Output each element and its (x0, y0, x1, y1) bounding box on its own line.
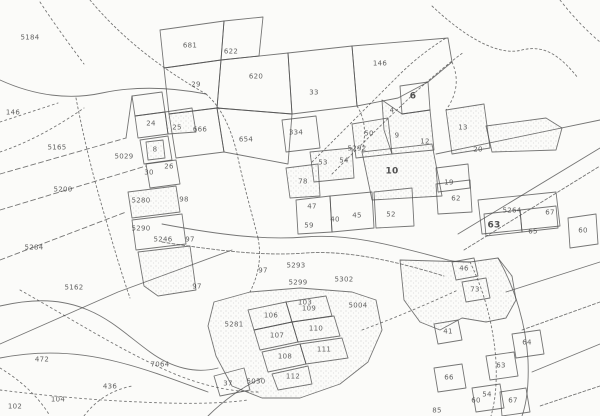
parcel-boundary (132, 214, 186, 250)
map-linework (0, 0, 600, 416)
road-line (560, 0, 600, 42)
parcel-boundary (138, 246, 196, 296)
parcel-boundary (282, 116, 320, 152)
parcel-boundary (486, 352, 518, 380)
parcel-boundary (486, 118, 562, 152)
road-line (540, 386, 600, 406)
parcel-boundary (164, 60, 221, 114)
parcel-boundary (436, 164, 470, 192)
map-canvas (0, 0, 600, 416)
cadastral-map: 5184146516552005284516247270644361041026… (0, 0, 600, 416)
parcel-boundary (146, 140, 165, 160)
road-line (506, 262, 600, 292)
parcel-boundary (382, 100, 434, 154)
road-line (0, 250, 232, 344)
parcel-boundary (446, 104, 490, 154)
parcel-boundary (330, 192, 374, 232)
parcel-boundary (221, 17, 263, 60)
road-line (522, 302, 600, 330)
road-line (0, 368, 50, 416)
road-line (0, 103, 58, 122)
road-line (126, 96, 132, 138)
parcel-boundary (400, 82, 430, 114)
parcel-boundary (128, 186, 180, 218)
road-line (532, 344, 600, 372)
parcel-boundary (286, 164, 320, 198)
parcel-boundary (135, 112, 168, 138)
road-line (0, 353, 208, 392)
road-line (162, 224, 448, 260)
road-line (458, 148, 600, 234)
road-line (206, 94, 258, 238)
road-line (446, 62, 456, 110)
parcel-boundary (400, 258, 516, 330)
parcel-boundary (436, 180, 472, 214)
parcel-boundary (146, 160, 180, 188)
parcel-boundary (296, 196, 332, 234)
parcel-boundary (288, 46, 357, 114)
parcel-boundary (217, 108, 292, 164)
road-line (0, 212, 126, 260)
parcel-boundary (568, 214, 598, 248)
road-line (0, 80, 206, 96)
parcel-boundary (472, 384, 504, 412)
road-line (0, 166, 146, 210)
parcel-boundary (434, 364, 466, 392)
parcel-boundary (217, 53, 292, 114)
road-line (250, 238, 260, 292)
road-line (76, 98, 130, 298)
road-line (464, 166, 600, 250)
road-line (0, 138, 126, 174)
road-line (0, 108, 84, 152)
road-line (0, 390, 248, 403)
road-line (40, 2, 84, 64)
parcel-boundary (165, 108, 196, 134)
road-line (90, 0, 206, 94)
